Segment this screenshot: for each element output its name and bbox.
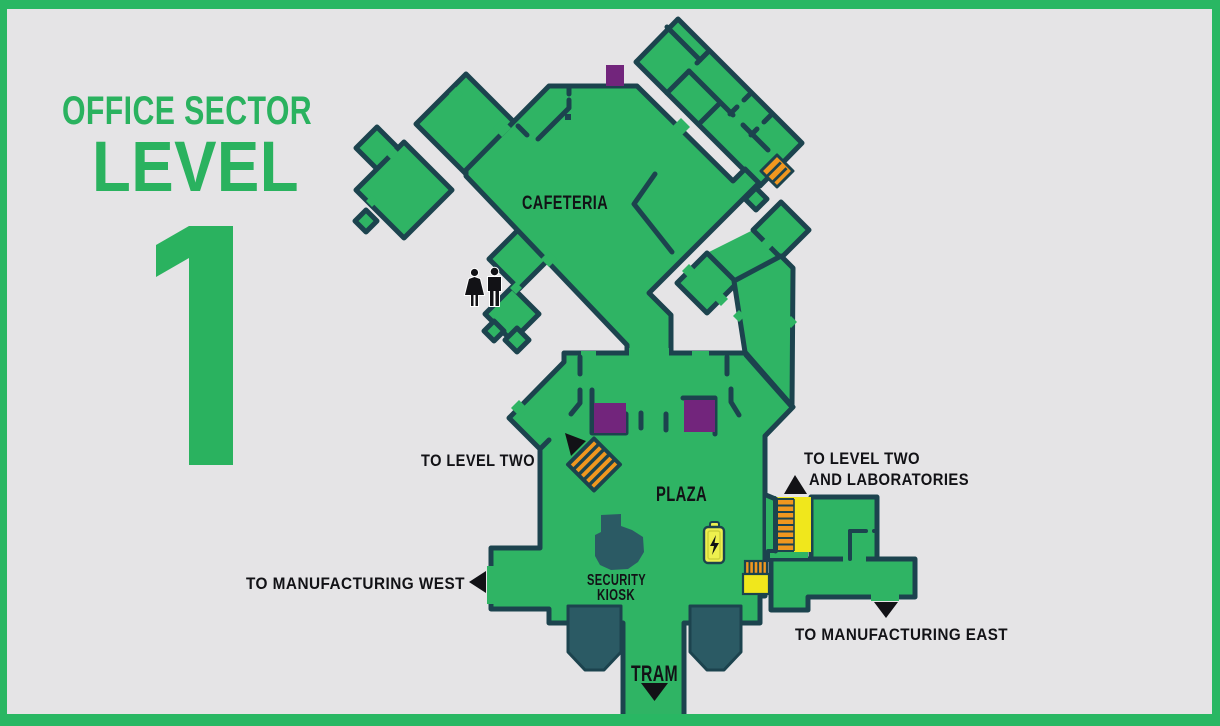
svg-text:OFFICE SECTOR: OFFICE SECTOR <box>62 89 312 133</box>
svg-text:LEVEL: LEVEL <box>92 128 299 207</box>
svg-text:PLAZA: PLAZA <box>656 483 707 506</box>
svg-text:TRAM: TRAM <box>631 661 678 686</box>
svg-text:KIOSK: KIOSK <box>597 587 635 604</box>
svg-text:TO MANUFACTURING EAST: TO MANUFACTURING EAST <box>795 625 1008 644</box>
svg-text:TO LEVEL TWO: TO LEVEL TWO <box>804 449 920 468</box>
svg-text:TO LEVEL TWO: TO LEVEL TWO <box>421 451 535 470</box>
svg-text:TO MANUFACTURING WEST: TO MANUFACTURING WEST <box>246 574 465 593</box>
svg-text:AND LABORATORIES: AND LABORATORIES <box>809 470 969 489</box>
svg-text:CAFETERIA: CAFETERIA <box>522 192 608 214</box>
